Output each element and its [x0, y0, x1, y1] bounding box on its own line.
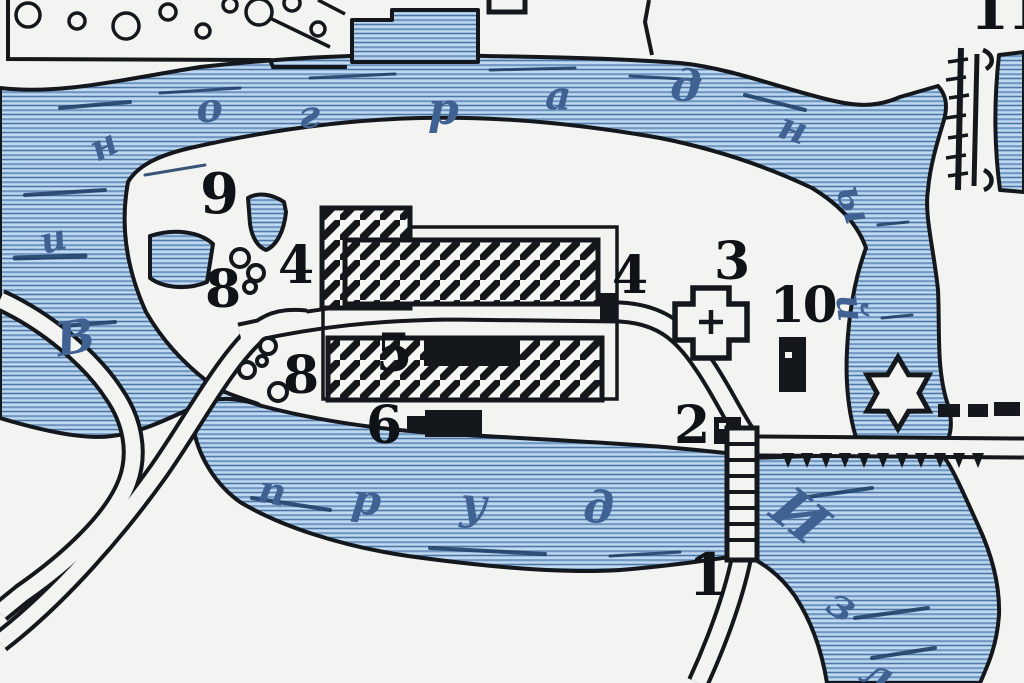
orchard-diagonal-line-2 — [318, 0, 345, 14]
map-stage: ВиноградныйпрудИзл 98443105682111 — [0, 0, 1024, 683]
upper-pond-rect — [352, 10, 478, 62]
pond-wedge-trapezoid — [150, 232, 213, 287]
dam-ladder-symbol — [727, 428, 757, 560]
map-drawing — [0, 0, 1024, 683]
palace-gate-block — [600, 293, 617, 323]
palace-solid-building-5 — [424, 336, 520, 366]
pond-wedge-fan — [248, 195, 286, 250]
pond-right-edge — [995, 52, 1024, 192]
palace-hatched-bar-north — [345, 240, 598, 304]
village-houses-dashes — [938, 402, 1020, 417]
orchard-tree-circles — [16, 0, 325, 39]
road-east — [756, 446, 1024, 448]
river-water — [748, 452, 999, 683]
monument-symbol — [779, 337, 806, 392]
stream-line — [645, 0, 652, 55]
dam-hairy-symbol — [946, 48, 992, 190]
palace-complex — [322, 208, 617, 400]
top-edge-building-outline — [489, 0, 525, 12]
